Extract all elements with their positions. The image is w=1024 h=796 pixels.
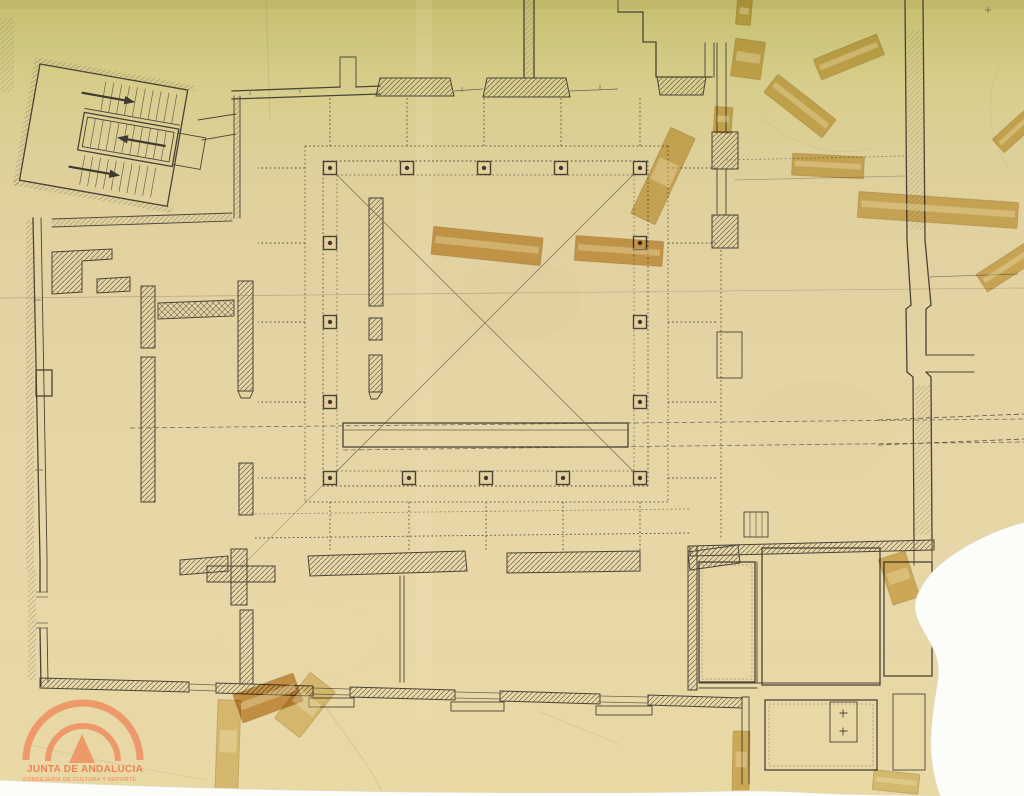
wall-pier (376, 78, 454, 96)
tape-piece (732, 731, 750, 793)
courtyard-column (324, 396, 337, 409)
tape-piece (731, 38, 766, 80)
tape-piece (713, 106, 733, 133)
courtyard-column (324, 162, 337, 175)
courtyard-column (555, 162, 568, 175)
scanned-floor-plan-sheet: JUNTA DE ANDALUCIA CONSEJERIA DE CULTURA… (0, 0, 1024, 796)
courtyard-column (557, 472, 570, 485)
tape-piece (215, 700, 241, 791)
courtyard-column (324, 237, 337, 250)
tape-piece (791, 153, 864, 179)
courtyard-column (324, 316, 337, 329)
courtyard-column (634, 472, 647, 485)
logo-subtitle: CONSEJERIA DE CULTURA Y DEPORTE (23, 777, 136, 783)
crosshatched-wall (158, 300, 234, 319)
courtyard-column (478, 162, 491, 175)
courtyard-column (634, 162, 647, 175)
courtyard-column (634, 316, 647, 329)
courtyard-column (403, 472, 416, 485)
logo-title: JUNTA DE ANDALUCIA (27, 764, 143, 775)
courtyard-column (480, 472, 493, 485)
courtyard-column (324, 472, 337, 485)
courtyard-column (401, 162, 414, 175)
floor-plan-svg: JUNTA DE ANDALUCIA CONSEJERIA DE CULTURA… (0, 0, 1024, 796)
wall-pier (483, 78, 570, 97)
tape-piece (872, 770, 920, 795)
sheet-top-edge (0, 0, 1024, 9)
tape-piece (735, 0, 752, 26)
west-gallery-wall (369, 198, 383, 399)
courtyard-column (634, 396, 647, 409)
